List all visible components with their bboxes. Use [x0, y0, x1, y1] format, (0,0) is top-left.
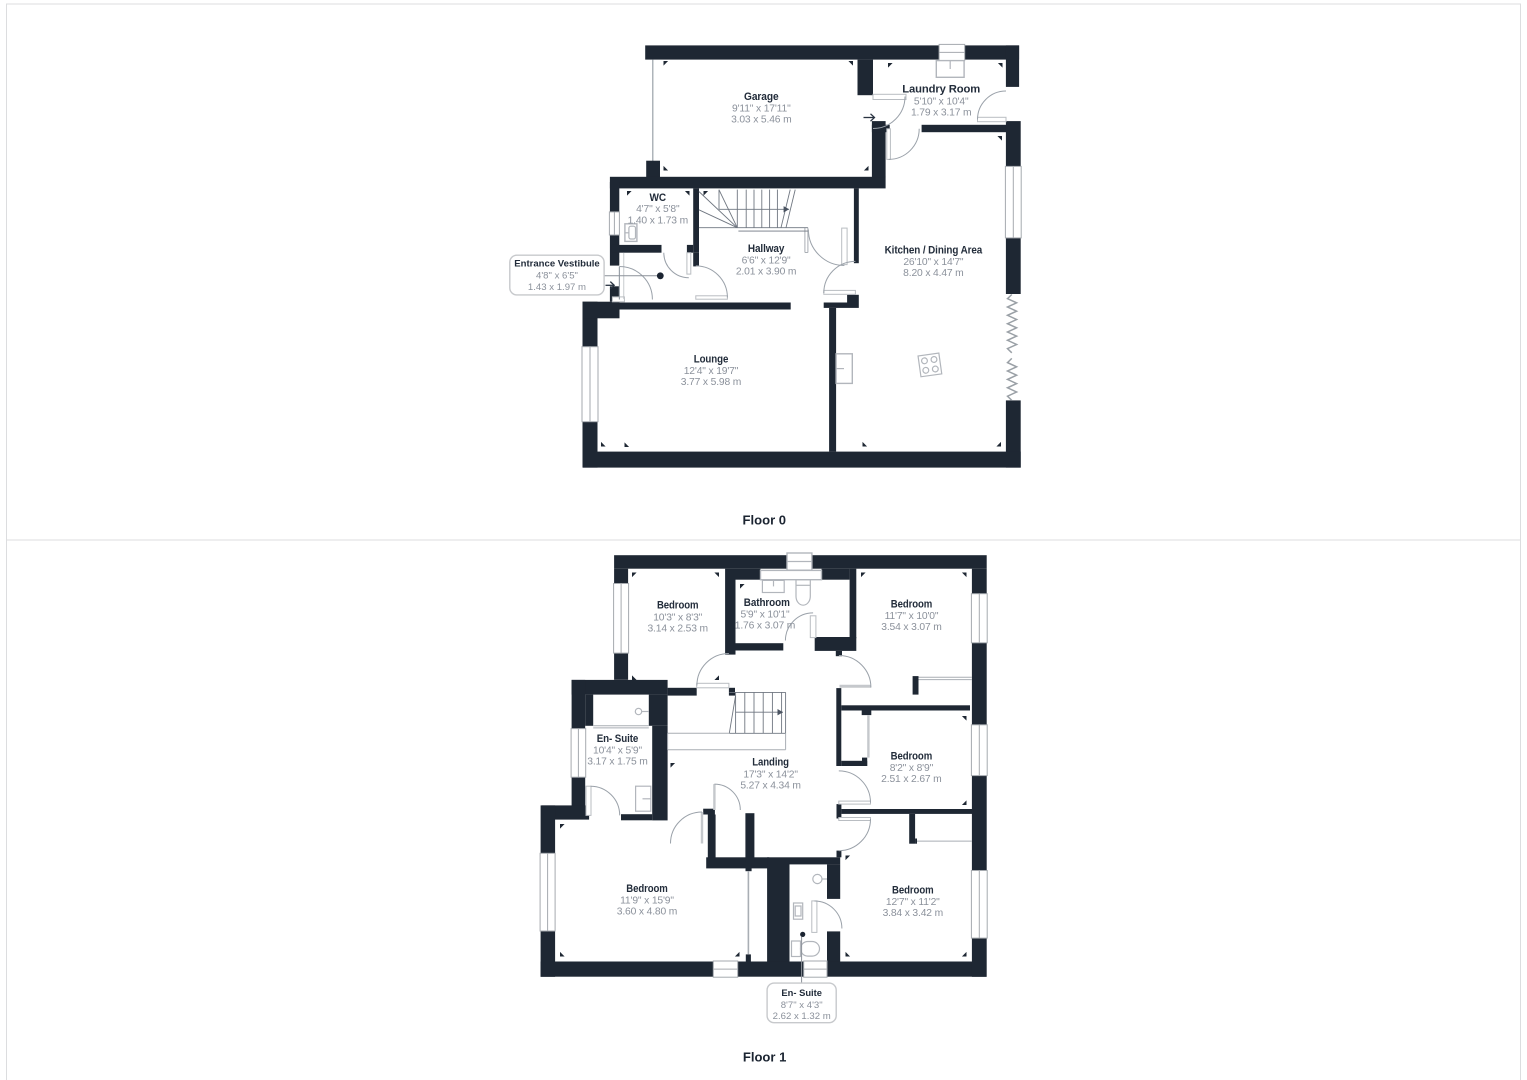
svg-text:Floor 1: Floor 1	[743, 1050, 787, 1065]
svg-text:Bedroom: Bedroom	[626, 883, 668, 895]
svg-text:4'8" x 6'5": 4'8" x 6'5"	[536, 270, 578, 281]
svg-text:12'7" x 11'2": 12'7" x 11'2"	[886, 897, 940, 908]
svg-text:Bedroom: Bedroom	[657, 600, 699, 612]
svg-text:5'10" x 10'4": 5'10" x 10'4"	[914, 96, 969, 107]
svg-text:Hallway: Hallway	[748, 243, 785, 255]
svg-text:11'7" x 10'0": 11'7" x 10'0"	[885, 611, 939, 622]
svg-text:8'7" x 4'3": 8'7" x 4'3"	[781, 1000, 823, 1011]
svg-text:11'9" x 15'9": 11'9" x 15'9"	[620, 895, 674, 906]
svg-text:2.01 x 3.90 m: 2.01 x 3.90 m	[736, 267, 796, 278]
svg-text:WC: WC	[650, 192, 667, 204]
svg-text:Kitchen / Dining Area: Kitchen / Dining Area	[885, 245, 983, 257]
svg-text:10'3" x 8'3": 10'3" x 8'3"	[653, 612, 702, 623]
svg-text:Laundry Room: Laundry Room	[902, 84, 980, 96]
svg-text:Landing: Landing	[752, 757, 789, 769]
svg-text:Garage: Garage	[744, 91, 779, 103]
svg-text:3.84 x 3.42 m: 3.84 x 3.42 m	[883, 908, 943, 919]
svg-text:6'6" x 12'9": 6'6" x 12'9"	[742, 256, 791, 267]
svg-text:1.79 x 3.17 m: 1.79 x 3.17 m	[911, 107, 971, 118]
svg-text:En- Suite: En- Suite	[597, 733, 639, 745]
svg-text:1.76 x 3.07 m: 1.76 x 3.07 m	[735, 621, 795, 632]
svg-text:2.62 x 1.32 m: 2.62 x 1.32 m	[773, 1011, 831, 1022]
svg-text:1.43 x 1.97 m: 1.43 x 1.97 m	[528, 282, 586, 293]
svg-text:12'4" x 19'7": 12'4" x 19'7"	[684, 366, 739, 377]
svg-text:4'7" x 5'8": 4'7" x 5'8"	[636, 204, 680, 215]
svg-text:3.60 x 4.80 m: 3.60 x 4.80 m	[617, 907, 677, 918]
svg-text:Lounge: Lounge	[694, 354, 729, 366]
svg-text:3.17 x 1.75 m: 3.17 x 1.75 m	[587, 756, 647, 767]
svg-text:3.54 x 3.07 m: 3.54 x 3.07 m	[881, 622, 941, 633]
svg-text:Entrance Vestibule: Entrance Vestibule	[514, 258, 600, 269]
svg-text:5'9" x 10'1": 5'9" x 10'1"	[741, 610, 790, 621]
svg-text:3.14 x 2.53 m: 3.14 x 2.53 m	[647, 623, 707, 634]
svg-text:3.77 x 5.98 m: 3.77 x 5.98 m	[681, 377, 741, 388]
svg-text:9'11" x 17'11": 9'11" x 17'11"	[732, 103, 791, 114]
svg-text:2.51 x 2.67 m: 2.51 x 2.67 m	[881, 774, 941, 785]
svg-text:Bedroom: Bedroom	[891, 599, 933, 611]
svg-text:Bathroom: Bathroom	[744, 597, 790, 609]
svg-text:En- Suite: En- Suite	[781, 988, 822, 999]
svg-text:1.40 x 1.73 m: 1.40 x 1.73 m	[628, 215, 688, 226]
svg-text:17'3" x 14'2": 17'3" x 14'2"	[743, 769, 798, 780]
svg-text:26'10" x 14'7": 26'10" x 14'7"	[903, 257, 964, 268]
svg-text:10'4" x 5'9": 10'4" x 5'9"	[593, 745, 642, 756]
svg-text:Bedroom: Bedroom	[892, 885, 934, 897]
svg-text:Floor 0: Floor 0	[743, 513, 787, 528]
svg-text:Bedroom: Bedroom	[891, 751, 933, 763]
svg-text:8.20 x 4.47 m: 8.20 x 4.47 m	[903, 268, 963, 279]
svg-text:8'2" x 8'9": 8'2" x 8'9"	[890, 763, 934, 774]
svg-text:5.27 x 4.34 m: 5.27 x 4.34 m	[740, 781, 800, 792]
svg-text:3.03 x 5.46 m: 3.03 x 5.46 m	[731, 114, 791, 125]
